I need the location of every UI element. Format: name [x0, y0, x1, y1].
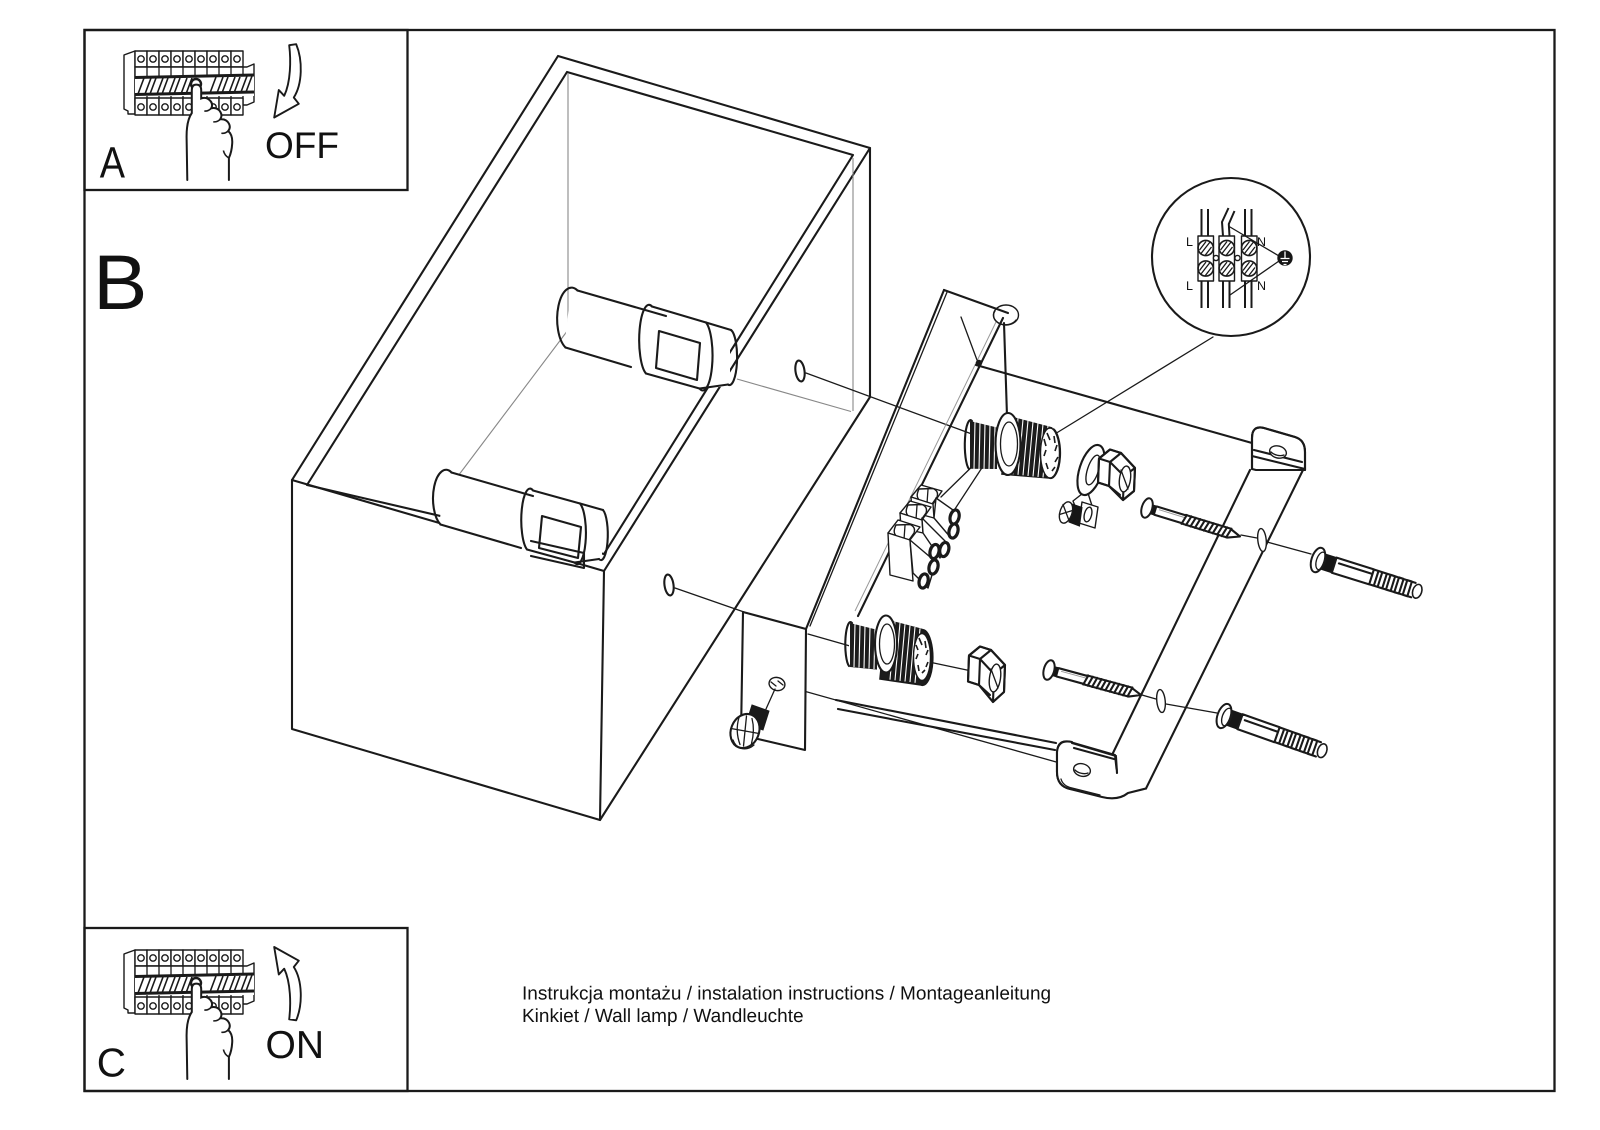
svg-text:N: N: [1257, 235, 1266, 249]
svg-text:C: C: [97, 1040, 126, 1086]
svg-text:L: L: [1186, 235, 1193, 249]
svg-text:N: N: [1257, 279, 1266, 293]
svg-text:Kinkiet / Wall lamp / Wandleuc: Kinkiet / Wall lamp / Wandleuchte: [522, 1006, 804, 1027]
svg-text:Instrukcja montażu / instalati: Instrukcja montażu / instalation instruc…: [522, 984, 1051, 1005]
svg-text:ON: ON: [266, 1024, 325, 1067]
svg-text:OFF: OFF: [265, 125, 339, 166]
svg-text:A: A: [100, 139, 126, 188]
svg-text:B: B: [93, 240, 147, 326]
svg-text:L: L: [1186, 279, 1193, 293]
